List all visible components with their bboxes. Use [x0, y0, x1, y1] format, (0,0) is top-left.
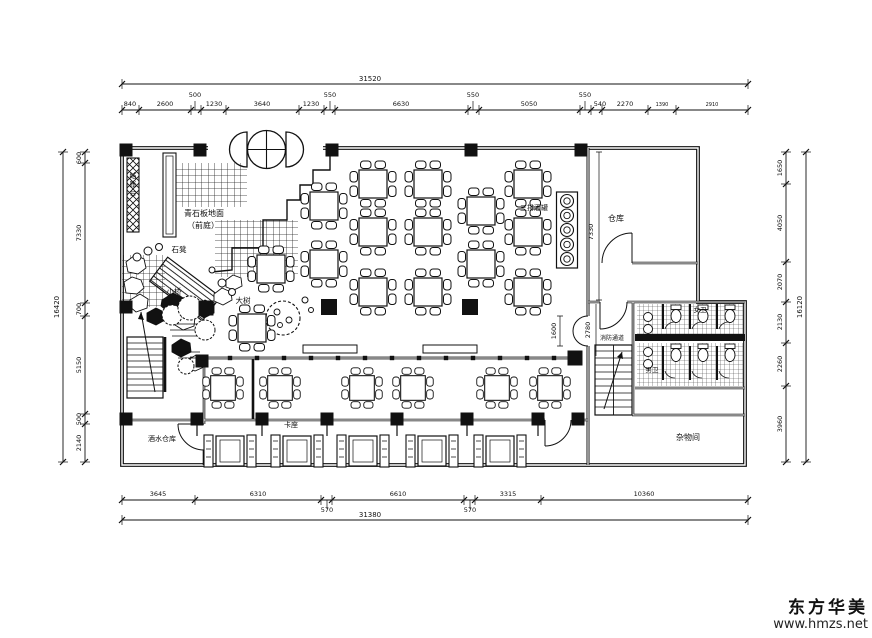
- column: [194, 144, 207, 157]
- dim-chain-left: 16420600733070051505002140: [53, 149, 90, 465]
- booth-table: [337, 435, 389, 467]
- dim-seg-value: 570: [464, 506, 476, 514]
- rail-stud: [390, 356, 394, 360]
- column: [120, 301, 133, 314]
- dining-table: [301, 241, 347, 287]
- column: [120, 413, 133, 426]
- rail-stud: [255, 356, 259, 360]
- label-drinks-warehouse: 酒水仓库: [148, 434, 176, 443]
- dim-seg-value: 550: [579, 91, 591, 99]
- booth-divider-stubs: [197, 420, 538, 436]
- dim-seg-value: 1390: [656, 102, 669, 108]
- dim-seg-value: 10360: [634, 490, 655, 498]
- mid-row-table: [260, 368, 300, 408]
- dim-chain-right: 16120165040502070213022603960: [776, 149, 811, 465]
- dim-seg-value: 600: [75, 152, 83, 164]
- column: [461, 413, 474, 426]
- dim-seg-value: 5050: [521, 100, 538, 108]
- corridor-door: [600, 302, 627, 329]
- entrance-right-leaf: [286, 132, 304, 167]
- warehouse-door: [602, 233, 632, 263]
- dim-seg-value: 570: [321, 506, 333, 514]
- dim-seg-value: 3640: [254, 100, 271, 108]
- dim-seg-value: 5150: [75, 357, 83, 374]
- label-dim-7330: 7330: [587, 224, 595, 241]
- dining-table: [229, 305, 275, 351]
- dining-table: [458, 188, 504, 234]
- rail-stud: [444, 356, 448, 360]
- rail-stud: [336, 356, 340, 360]
- dining-table: [505, 269, 551, 315]
- column: [191, 413, 204, 426]
- drinks-warehouse-door: [178, 424, 204, 450]
- label-small-bridge: 小桥: [167, 286, 182, 296]
- dining-table: [301, 183, 347, 229]
- dim-seg-value: 500: [189, 91, 201, 99]
- dim-seg-value: 1230: [206, 100, 223, 108]
- wine-jar: [561, 224, 574, 237]
- dining-table: [405, 269, 451, 315]
- booth-tables: [204, 435, 526, 467]
- dining-table: [350, 161, 396, 207]
- dim-seg-value: 6610: [390, 490, 407, 498]
- floor-plan-canvas: 3152084026005001230364012305506630550505…: [0, 0, 872, 638]
- column: [321, 299, 337, 315]
- dim-chain-bottom: 31380364563105706610570331510360: [119, 490, 751, 525]
- rail-stud: [525, 356, 529, 360]
- rail-stud: [282, 356, 286, 360]
- label-womens-wc: 女卫: [694, 305, 708, 314]
- wine-jar: [561, 253, 574, 266]
- dim-total-value: 31380: [359, 511, 381, 519]
- dim-seg-value: 6630: [393, 100, 410, 108]
- rail-stud: [498, 356, 502, 360]
- dim-seg-value: 840: [124, 100, 136, 108]
- rail-stud: [471, 356, 475, 360]
- label-stone-bench: 石凳: [172, 244, 187, 254]
- entrance-left-leaf: [230, 132, 248, 167]
- dim-total-value: 31520: [359, 75, 381, 83]
- dim-total-value: 16420: [53, 296, 61, 318]
- dining-table: [505, 161, 551, 207]
- label-storage-room: 杂物间: [676, 432, 700, 442]
- label-mens-wc: 男卫: [646, 366, 660, 374]
- rail-stud: [552, 356, 556, 360]
- column: [321, 413, 334, 426]
- column: [199, 301, 214, 316]
- column: [326, 144, 339, 157]
- watermark: 东方华美 www.hmzs.net: [773, 599, 868, 632]
- column: [256, 413, 269, 426]
- dim-seg-value: 2270: [617, 100, 634, 108]
- label-big-tree: 大树: [236, 295, 251, 305]
- dining-table: [505, 209, 551, 255]
- dim-seg-value: 1230: [303, 100, 320, 108]
- passage-door: [545, 420, 571, 446]
- wine-jar: [561, 238, 574, 251]
- dim-seg-value: 550: [324, 91, 336, 99]
- label-front-court: （前庭）: [187, 220, 219, 230]
- dim-seg-value: 2140: [75, 435, 83, 452]
- booth-table: [406, 435, 458, 467]
- dim-seg-value: 3960: [776, 416, 784, 433]
- wine-jar-rack: [557, 192, 578, 268]
- main-entrance-door: [230, 131, 304, 169]
- mid-row-table: [203, 368, 243, 408]
- dim-seg-value: 500: [75, 413, 83, 425]
- column: [568, 351, 583, 366]
- mid-row-table: [342, 368, 382, 408]
- dim-seg-value: 540: [594, 100, 606, 108]
- dim-seg-value: 2130: [776, 314, 784, 331]
- watermark-url: www.hmzs.net: [773, 618, 868, 632]
- partition-screen: [303, 345, 357, 353]
- label-three-rows-wine-jars: 三排酒罐: [520, 203, 548, 212]
- wine-jar: [561, 209, 574, 222]
- label-fire-passage: 消防通道: [600, 334, 624, 342]
- mid-row-table: [477, 368, 517, 408]
- dim-seg-value: 2260: [776, 356, 784, 373]
- dining-tables: [229, 161, 551, 351]
- dim-total-value: 16120: [796, 296, 804, 318]
- dining-table: [405, 161, 451, 207]
- label-bluestone-paving: 青石板地面: [184, 208, 224, 218]
- booth-table: [474, 435, 526, 467]
- watermark-brand: 东方华美: [773, 599, 868, 618]
- partition-screen: [423, 345, 477, 353]
- dim-seg-value: 2600: [157, 100, 174, 108]
- dining-table: [350, 269, 396, 315]
- dining-table: [458, 241, 504, 287]
- dim-seg-value: 4050: [776, 215, 784, 232]
- wc-divider-wall: [635, 334, 745, 341]
- dining-table: [350, 209, 396, 255]
- paving-patch: [173, 163, 247, 207]
- dim-seg-value: 6310: [250, 490, 267, 498]
- mid-row-table: [393, 368, 433, 408]
- label-dim-2780: 2780: [584, 322, 592, 339]
- stair-arrow-head: [138, 312, 144, 320]
- label-booth-seating: 卡座: [284, 420, 298, 429]
- column: [575, 144, 588, 157]
- column: [120, 144, 133, 157]
- rail-stud: [363, 356, 367, 360]
- dim-seg-value: 550: [467, 91, 479, 99]
- wine-jar: [561, 195, 574, 208]
- label-warehouse: 仓库: [608, 213, 624, 223]
- dim-seg-value: 2910: [706, 102, 719, 108]
- floor-plan-drawing: 3152084026005001230364012305506630550505…: [0, 0, 872, 638]
- rail-stud: [309, 356, 313, 360]
- booth-table: [271, 435, 323, 467]
- screen-counter: [163, 153, 176, 237]
- rail-stud: [201, 356, 205, 360]
- dining-table: [405, 209, 451, 255]
- staircase-right: [595, 345, 632, 415]
- column: [465, 144, 478, 157]
- staircase-left: [127, 312, 163, 398]
- column: [391, 413, 404, 426]
- dim-seg-value: 2070: [776, 274, 784, 291]
- dim-seg-value: 7330: [75, 225, 83, 242]
- dim-seg-value: 700: [75, 303, 83, 315]
- mid-row-table: [530, 368, 570, 408]
- column: [532, 413, 545, 426]
- column: [572, 413, 585, 426]
- column: [462, 299, 478, 315]
- dim-seg-value: 3645: [150, 490, 167, 498]
- mid-row-tables: [203, 368, 570, 408]
- label-dim-1600: 1600: [550, 323, 558, 340]
- rail-stud: [417, 356, 421, 360]
- dim-seg-value: 3315: [500, 490, 517, 498]
- dim-chain-top: 3152084026005001230364012305506630550505…: [119, 75, 751, 115]
- label-cashier-desk: 结账台: [130, 171, 137, 197]
- rail-stud: [228, 356, 232, 360]
- dim-seg-value: 1650: [776, 160, 784, 177]
- booth-table: [204, 435, 256, 467]
